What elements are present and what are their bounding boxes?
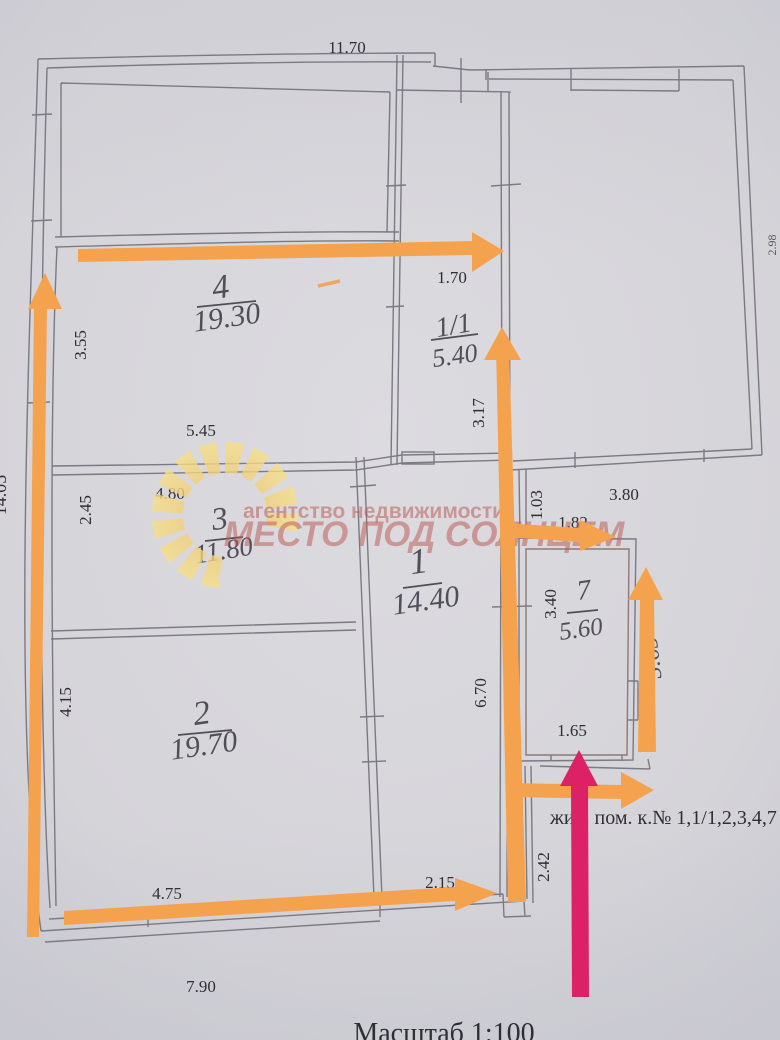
svg-text:1.70: 1.70 xyxy=(437,268,467,287)
svg-text:3.40: 3.40 xyxy=(541,589,560,619)
svg-text:2.45: 2.45 xyxy=(76,495,95,525)
svg-text:4.15: 4.15 xyxy=(56,687,75,717)
svg-text:2.98: 2.98 xyxy=(765,235,779,256)
svg-text:5.45: 5.45 xyxy=(186,421,216,440)
svg-text:7.90: 7.90 xyxy=(186,977,216,996)
svg-text:14.05: 14.05 xyxy=(0,475,10,516)
svg-text:1.65: 1.65 xyxy=(557,721,587,740)
svg-text:3.55: 3.55 xyxy=(71,330,90,360)
svg-text:6.70: 6.70 xyxy=(471,678,490,708)
svg-text:3.80: 3.80 xyxy=(609,485,639,504)
svg-text:11.70: 11.70 xyxy=(328,38,366,57)
svg-text:Масштаб 1:100: Масштаб 1:100 xyxy=(353,1018,534,1040)
svg-text:3.17: 3.17 xyxy=(469,398,488,428)
svg-text:4.75: 4.75 xyxy=(152,884,182,903)
svg-text:2.42: 2.42 xyxy=(534,852,553,882)
